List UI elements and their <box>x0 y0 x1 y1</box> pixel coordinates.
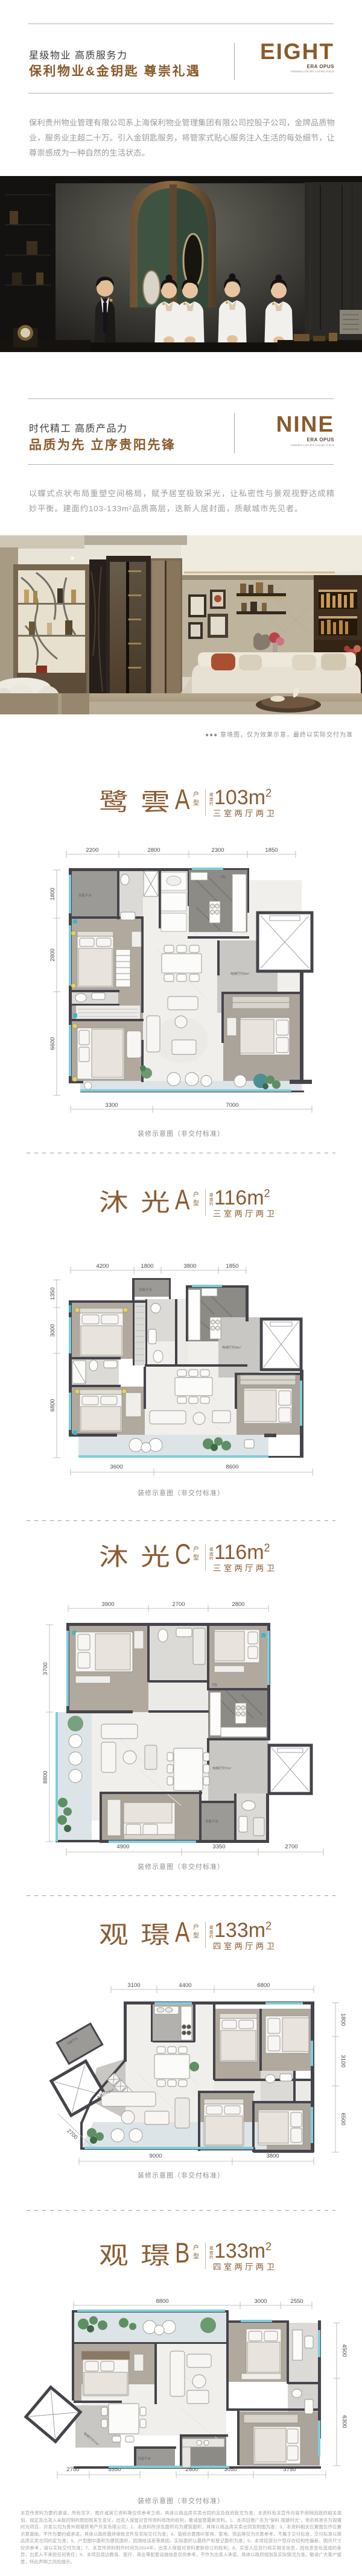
svg-text:8800: 8800 <box>156 2298 168 2305</box>
svg-text:2800: 2800 <box>49 948 56 961</box>
svg-text:3100: 3100 <box>340 2055 346 2067</box>
svg-text:3350: 3350 <box>212 1844 225 1850</box>
svg-text:2200: 2200 <box>86 847 98 854</box>
svg-text:1800: 1800 <box>340 2013 346 2026</box>
svg-text:2700: 2700 <box>285 1844 297 1850</box>
svg-text:3000: 3000 <box>254 2298 267 2305</box>
svg-text:3000: 3000 <box>49 1324 56 1337</box>
svg-text:9000: 9000 <box>149 2153 162 2159</box>
svg-text:3800: 3800 <box>266 2153 279 2159</box>
svg-text:4400: 4400 <box>179 1982 191 1989</box>
svg-text:8800: 8800 <box>42 1771 49 1783</box>
svg-text:6800: 6800 <box>49 1399 56 1411</box>
svg-text:6500: 6500 <box>340 2112 346 2125</box>
svg-text:电梯厅约7m²: 电梯厅约7m² <box>212 1766 232 1771</box>
svg-text:2700: 2700 <box>66 2127 78 2140</box>
svg-text:2300: 2300 <box>211 847 224 854</box>
svg-text:3300: 3300 <box>105 1102 118 1109</box>
svg-text:电梯厅约4m²: 电梯厅约4m² <box>222 1345 241 1350</box>
svg-text:1350: 1350 <box>49 1287 56 1300</box>
svg-text:FD: FD <box>221 876 226 880</box>
svg-text:3700: 3700 <box>42 1662 49 1675</box>
svg-text:3800: 3800 <box>183 1263 196 1270</box>
svg-text:2550: 2550 <box>290 2298 303 2305</box>
svg-text:1850: 1850 <box>226 1263 238 1270</box>
svg-text:4900: 4900 <box>116 1844 129 1850</box>
svg-text:2800: 2800 <box>147 847 160 854</box>
svg-text:设备平台: 设备平台 <box>138 2456 151 2461</box>
svg-text:6600: 6600 <box>49 1037 56 1050</box>
svg-text:FD: FD <box>212 1684 218 1687</box>
svg-text:8600: 8600 <box>226 1464 238 1470</box>
svg-text:设备平台: 设备平台 <box>78 893 92 898</box>
svg-text:1800: 1800 <box>141 1263 153 1270</box>
svg-text:设备平台: 设备平台 <box>139 1287 153 1292</box>
svg-text:7000: 7000 <box>226 1102 238 1109</box>
svg-text:6800: 6800 <box>257 1982 270 1989</box>
svg-text:3100: 3100 <box>127 1982 140 1989</box>
svg-text:4500: 4500 <box>341 2344 348 2357</box>
svg-text:6300: 6300 <box>341 2415 348 2428</box>
svg-text:1800: 1800 <box>49 887 56 900</box>
svg-text:3600: 3600 <box>110 1464 122 1470</box>
svg-text:电梯厅约4m²: 电梯厅约4m² <box>230 971 250 976</box>
svg-text:设备平台: 设备平台 <box>205 1819 219 1824</box>
svg-text:4200: 4200 <box>96 1263 109 1270</box>
svg-text:1850: 1850 <box>265 847 278 854</box>
svg-text:3900: 3900 <box>101 1601 114 1608</box>
svg-text:2700: 2700 <box>172 1601 185 1608</box>
svg-text:2800: 2800 <box>232 1601 244 1608</box>
